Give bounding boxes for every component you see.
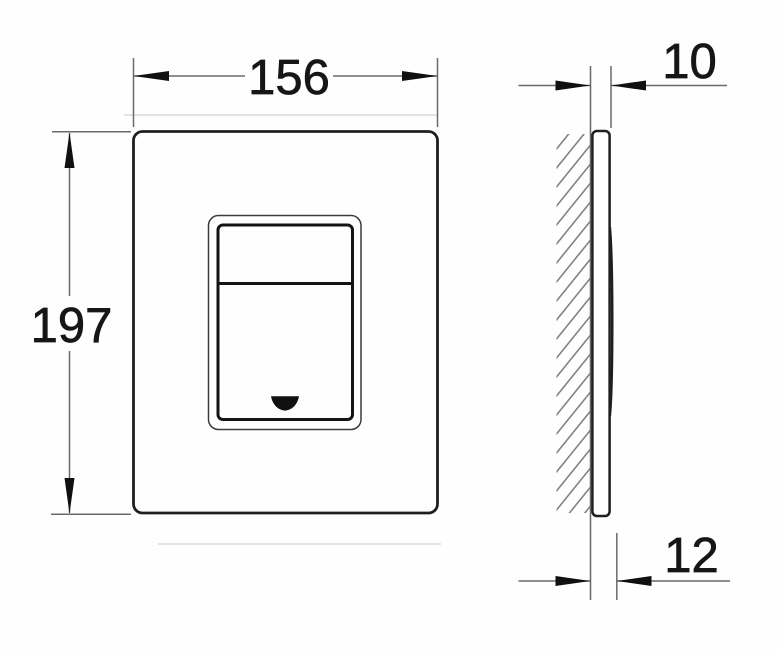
svg-text:10: 10 [662,35,717,89]
svg-text:197: 197 [31,299,113,353]
svg-text:156: 156 [248,51,330,105]
svg-text:12: 12 [664,529,719,583]
